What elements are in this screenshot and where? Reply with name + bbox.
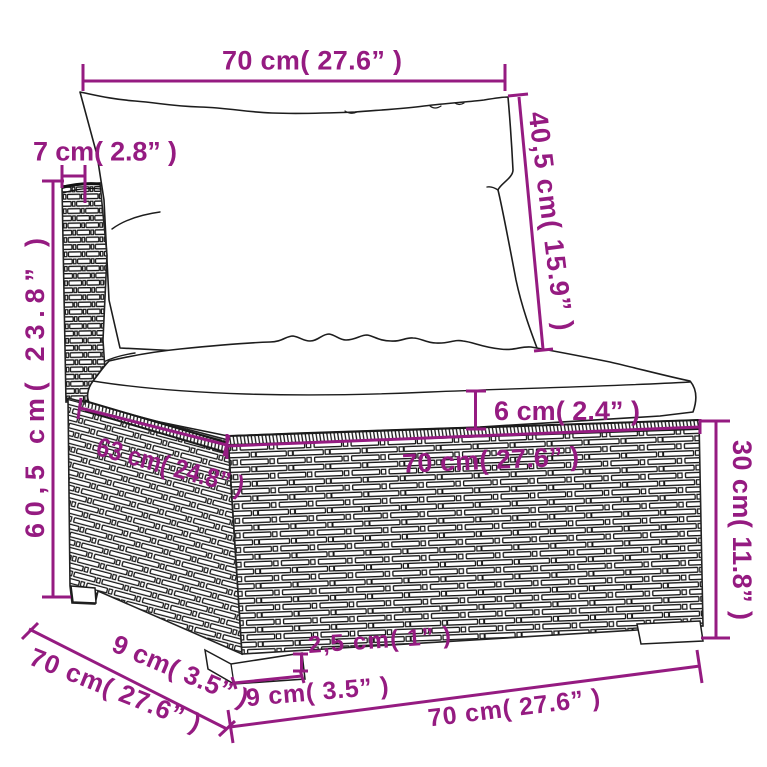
svg-text:7 cm( 2.8” ): 7 cm( 2.8” ) [33,137,177,167]
svg-text:70 cm( 27.6” ): 70 cm( 27.6” ) [222,46,402,76]
svg-text:6 cm( 2.4” ): 6 cm( 2.4” ) [494,396,640,426]
svg-text:30 cm( 11.8” ): 30 cm( 11.8” ) [727,440,757,620]
